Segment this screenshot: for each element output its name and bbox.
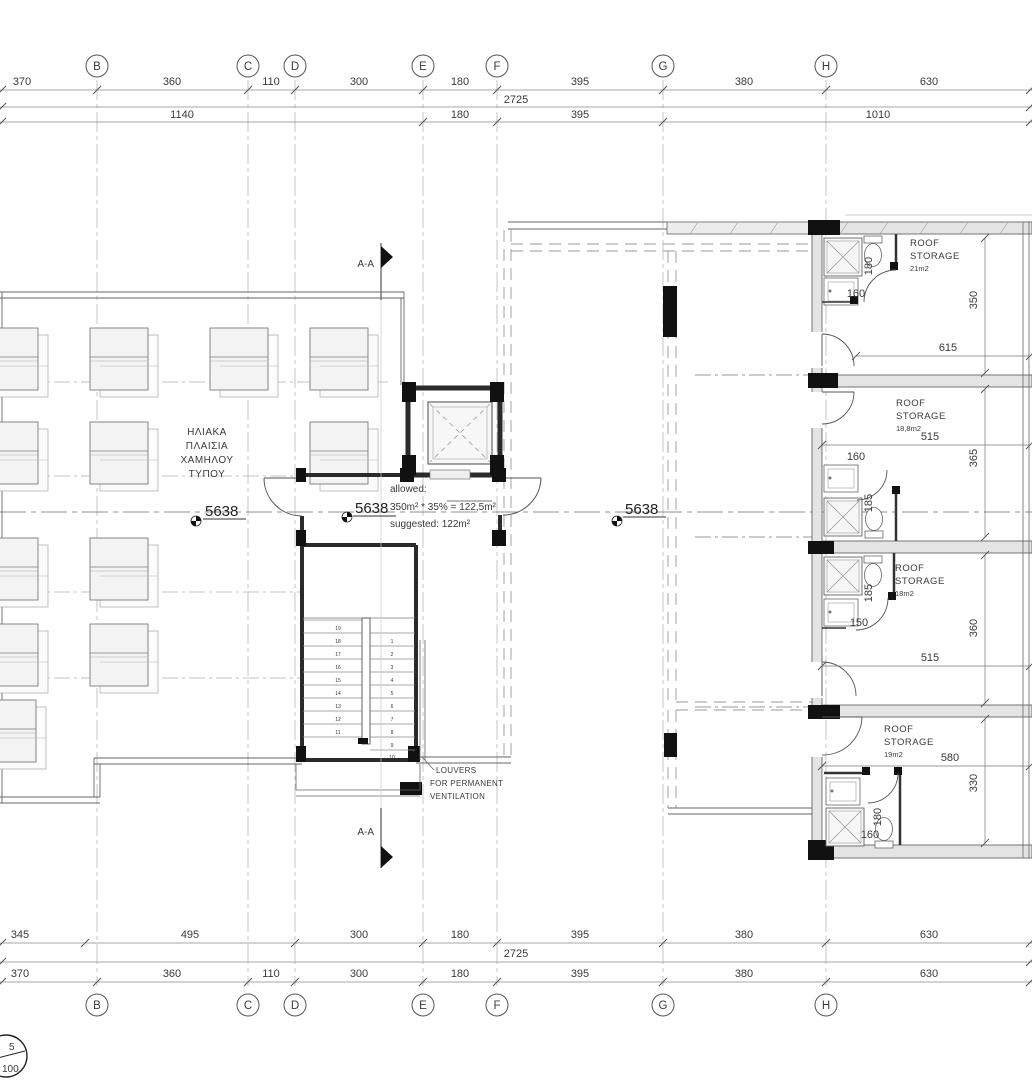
stair-number: 5 bbox=[391, 691, 394, 697]
room-label: STORAGE bbox=[910, 251, 960, 262]
room-label: ROOF bbox=[910, 238, 939, 249]
grid-bubble-top-e: E bbox=[419, 61, 427, 73]
dim-label: 395 bbox=[571, 929, 589, 941]
column bbox=[663, 286, 677, 757]
louvers-note-line: LOUVERS bbox=[436, 766, 476, 775]
dim-label: 360 bbox=[163, 968, 181, 980]
dim-label: 1140 bbox=[170, 109, 194, 121]
stair-number: 2 bbox=[391, 652, 394, 658]
room-roof-storage-2: ROOF STORAGE 18,8m2 515 365 160 185 bbox=[818, 385, 1032, 541]
stair-number: 10 bbox=[389, 755, 395, 761]
level-marker-1: 5638 bbox=[191, 503, 246, 526]
walls bbox=[812, 222, 1032, 858]
bath-door bbox=[868, 773, 898, 803]
solar-panels-label: ΗΛΙΑΚΑ bbox=[187, 427, 227, 438]
section-label-bottom: A-A bbox=[357, 827, 374, 838]
grid-bubble-bottom-d: D bbox=[291, 1000, 299, 1012]
dim-label: 365 bbox=[968, 449, 980, 467]
grid-lines bbox=[97, 80, 826, 986]
bottom-dimension-band: 345 495 300 180 395 380 630 2725 370 360… bbox=[0, 929, 1032, 1016]
room-area: 21m2 bbox=[910, 264, 929, 273]
solar-panels-label: ΧΑΜΗΛΟΥ bbox=[181, 455, 234, 466]
stair-number: 7 bbox=[391, 717, 394, 723]
dim-label: 395 bbox=[571, 109, 589, 121]
stair-number: 9 bbox=[391, 743, 394, 749]
room-label: STORAGE bbox=[896, 411, 946, 422]
stair-number: 4 bbox=[391, 678, 394, 684]
area-note-line: 350m² * 35% = 122,5m² bbox=[390, 502, 497, 513]
dim-total-label: 2725 bbox=[504, 948, 528, 960]
grid-bubble-top-f: F bbox=[493, 61, 500, 73]
dim-label: 185 bbox=[863, 494, 875, 512]
right-wing: ROOF STORAGE 21m2 615 350 180 160 ROOF S… bbox=[808, 215, 1032, 860]
grid-bubble-bottom-e: E bbox=[419, 1000, 427, 1012]
louvers-note-line: VENTILATION bbox=[430, 792, 485, 801]
dim-label: 580 bbox=[941, 752, 959, 764]
dim-label: 630 bbox=[920, 76, 938, 88]
dim-label: 300 bbox=[350, 929, 368, 941]
dim-label: 360 bbox=[163, 76, 181, 88]
stair-number: 8 bbox=[391, 730, 394, 736]
dim-total-label: 2725 bbox=[504, 94, 528, 106]
top-dimension-band: 370 360 110 300 180 395 380 630 2725 114… bbox=[0, 55, 1032, 126]
dim-label: 380 bbox=[735, 929, 753, 941]
scale-denominator: 100 bbox=[2, 1064, 19, 1075]
stair-number: 15 bbox=[335, 678, 341, 684]
dim-label: 150 bbox=[850, 617, 868, 629]
room-label: ROOF bbox=[895, 563, 924, 574]
grid-bubble-top-h: H bbox=[822, 61, 830, 73]
dim-label: 1010 bbox=[866, 109, 890, 121]
dim-label: 330 bbox=[968, 774, 980, 792]
grid-bubbles-bottom: B C D E F G H bbox=[86, 994, 837, 1016]
dim-label: 630 bbox=[920, 929, 938, 941]
level-value: 5638 bbox=[355, 500, 388, 517]
grid-bubble-top-b: B bbox=[93, 61, 101, 73]
floor-plan-drawing: 370 360 110 300 180 395 380 630 2725 114… bbox=[0, 0, 1032, 1080]
room-roof-storage-3: ROOF STORAGE 18m2 515 360 185 150 bbox=[818, 551, 1032, 707]
lobby bbox=[264, 468, 541, 796]
stair-number: 3 bbox=[391, 665, 394, 671]
dim-label: 110 bbox=[262, 968, 280, 980]
grid-bubble-top-g: G bbox=[659, 61, 668, 73]
stair-number: 6 bbox=[391, 704, 394, 710]
dim-label: 160 bbox=[847, 288, 865, 300]
solar-panels-label: ΤΥΠΟΥ bbox=[189, 469, 226, 480]
dim-label: 300 bbox=[350, 76, 368, 88]
dim-label: 370 bbox=[11, 968, 29, 980]
staircase: 19 18 17 16 15 14 13 12 11 1 2 3 4 5 6 7… bbox=[303, 618, 415, 761]
level-value: 5638 bbox=[205, 503, 238, 520]
dim-label: 350 bbox=[968, 291, 980, 309]
elevator-shaft bbox=[402, 382, 504, 479]
louvers-note-line: FOR PERMANENT bbox=[430, 779, 503, 788]
section-flag-bottom bbox=[381, 846, 393, 868]
dim-label: 495 bbox=[181, 929, 199, 941]
column bbox=[296, 468, 506, 795]
room-roof-storage-1: ROOF STORAGE 21m2 615 350 180 160 bbox=[822, 234, 1032, 377]
area-note-line: suggested: 122m² bbox=[390, 519, 471, 530]
solar-panel-field: ΗΛΙΑΚΑ ΠΛΑΙΣΙΑ ΧΑΜΗΛΟΥ ΤΥΠΟΥ bbox=[0, 292, 404, 803]
level-marker-2: 5638 bbox=[342, 500, 396, 522]
stair-number: 19 bbox=[335, 626, 341, 632]
dim-label: 160 bbox=[847, 451, 865, 463]
stair-number: 12 bbox=[335, 717, 341, 723]
room-roof-storage-4: ROOF STORAGE 19m2 580 330 180 160 bbox=[818, 715, 1032, 848]
grid-bubble-bottom-b: B bbox=[93, 1000, 101, 1012]
scale-numerator: 5 bbox=[9, 1042, 15, 1053]
dim-label: 185 bbox=[863, 584, 875, 602]
room-label: STORAGE bbox=[884, 737, 934, 748]
dim-label: 515 bbox=[921, 431, 939, 443]
dim-label: 380 bbox=[735, 968, 753, 980]
scale-marker: 5 100 bbox=[0, 1035, 27, 1077]
stair-number: 18 bbox=[335, 639, 341, 645]
grid-bubble-bottom-f: F bbox=[493, 1000, 500, 1012]
grid-bubbles-top: B C D E F G H bbox=[86, 55, 837, 77]
stair-number: 16 bbox=[335, 665, 341, 671]
louvers-note: LOUVERS FOR PERMANENT VENTILATION bbox=[422, 757, 503, 801]
dim-label: 395 bbox=[571, 76, 589, 88]
room-label: ROOF bbox=[896, 398, 925, 409]
dim-label: 345 bbox=[11, 929, 29, 941]
terrace bbox=[416, 222, 812, 814]
solar-panel-array bbox=[0, 328, 378, 769]
solar-panels-label: ΠΛΑΙΣΙΑ bbox=[186, 441, 228, 452]
area-note-line: allowed: bbox=[390, 484, 427, 495]
grid-bubble-bottom-g: G bbox=[659, 1000, 668, 1012]
level-value: 5638 bbox=[625, 501, 658, 518]
dim-label: 370 bbox=[13, 76, 31, 88]
room-area: 19m2 bbox=[884, 750, 903, 759]
area-note: allowed: 350m² * 35% = 122,5m² suggested… bbox=[390, 484, 497, 530]
room-area: 18,8m2 bbox=[896, 424, 921, 433]
dim-label: 180 bbox=[872, 808, 884, 826]
room-area: 18m2 bbox=[895, 589, 914, 598]
dim-label: 110 bbox=[262, 76, 280, 88]
stair-treads-left bbox=[303, 620, 362, 737]
dim-label: 300 bbox=[350, 968, 368, 980]
stair-number: 11 bbox=[335, 730, 340, 736]
dim-label: 630 bbox=[920, 968, 938, 980]
grid-bubble-bottom-c: C bbox=[244, 1000, 252, 1012]
dim-label: 180 bbox=[451, 968, 469, 980]
dim-label: 180 bbox=[451, 76, 469, 88]
dim-label: 180 bbox=[451, 109, 469, 121]
dim-label: 380 bbox=[735, 76, 753, 88]
dim-label: 515 bbox=[921, 652, 939, 664]
dim-label: 395 bbox=[571, 968, 589, 980]
dim-label: 180 bbox=[863, 257, 875, 275]
stair-number: 17 bbox=[335, 652, 341, 658]
grid-bubble-bottom-h: H bbox=[822, 1000, 830, 1012]
room-label: ROOF bbox=[884, 724, 913, 735]
dim-label: 160 bbox=[861, 829, 879, 841]
dim-label: 180 bbox=[451, 929, 469, 941]
stair-number: 1 bbox=[391, 639, 394, 645]
grid-bubble-top-d: D bbox=[291, 61, 299, 73]
stair-number: 13 bbox=[335, 704, 341, 710]
grid-bubble-top-c: C bbox=[244, 61, 252, 73]
dim-label: 360 bbox=[968, 619, 980, 637]
stair-number: 14 bbox=[335, 691, 341, 697]
room-label: STORAGE bbox=[895, 576, 945, 587]
level-marker-3: 5638 bbox=[612, 501, 666, 526]
core: 19 18 17 16 15 14 13 12 11 1 2 3 4 5 6 7… bbox=[264, 382, 541, 801]
section-label-top: A-A bbox=[357, 259, 374, 270]
section-flag-top bbox=[381, 246, 393, 268]
dim-label: 615 bbox=[939, 342, 957, 354]
